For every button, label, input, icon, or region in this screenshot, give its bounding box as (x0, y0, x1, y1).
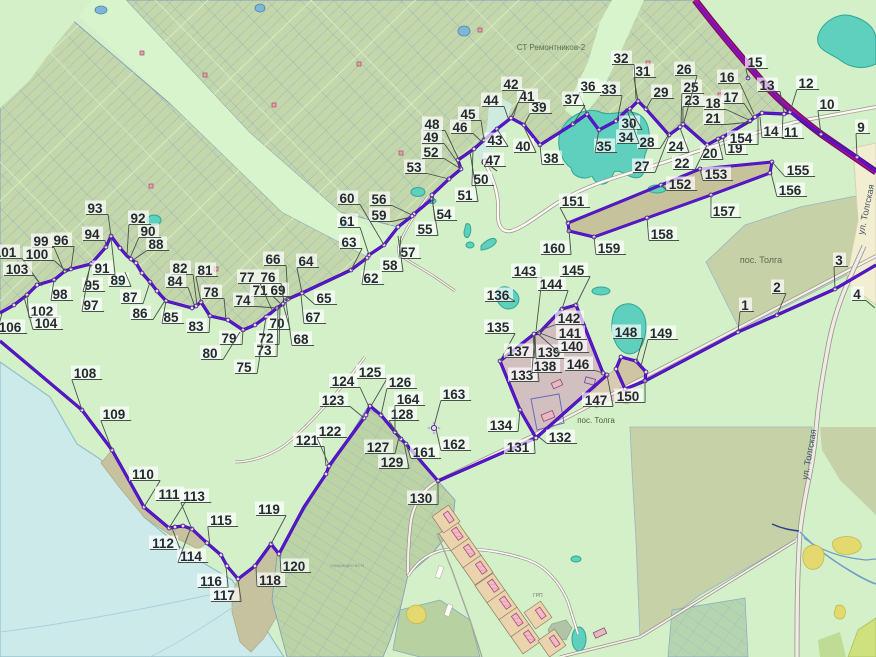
svg-text:101: 101 (0, 245, 17, 260)
svg-text:120: 120 (283, 559, 306, 574)
svg-text:137: 137 (507, 344, 530, 359)
svg-text:34: 34 (618, 130, 634, 145)
svg-text:42: 42 (503, 77, 518, 92)
svg-text:152: 152 (669, 177, 692, 192)
svg-text:161: 161 (413, 445, 436, 460)
svg-text:86: 86 (132, 306, 148, 321)
svg-text:ГРП: ГРП (533, 593, 543, 599)
svg-text:73: 73 (256, 343, 272, 358)
svg-text:4: 4 (853, 287, 861, 302)
svg-text:125: 125 (359, 365, 382, 380)
svg-text:87: 87 (122, 290, 137, 305)
svg-text:149: 149 (650, 326, 673, 341)
svg-text:11: 11 (784, 125, 799, 140)
svg-text:114: 114 (180, 549, 202, 564)
svg-text:83: 83 (188, 319, 204, 334)
svg-text:136: 136 (487, 288, 510, 303)
svg-text:30: 30 (621, 116, 636, 131)
svg-text:9: 9 (857, 120, 865, 135)
svg-text:пос. Толга: пос. Толга (740, 255, 782, 265)
svg-text:43: 43 (487, 133, 503, 148)
svg-text:144: 144 (540, 277, 563, 292)
svg-text:38: 38 (543, 151, 559, 166)
svg-text:133: 133 (511, 368, 534, 383)
svg-text:158: 158 (651, 227, 674, 242)
svg-text:155: 155 (787, 163, 810, 178)
svg-text:65: 65 (316, 291, 332, 306)
svg-text:139: 139 (538, 345, 561, 360)
svg-text:122: 122 (319, 424, 342, 439)
svg-text:80: 80 (202, 346, 217, 361)
svg-text:118: 118 (259, 573, 281, 588)
svg-text:164: 164 (397, 392, 420, 407)
svg-text:145: 145 (562, 263, 585, 278)
svg-text:14: 14 (763, 124, 779, 139)
svg-text:97: 97 (83, 298, 98, 313)
svg-text:68: 68 (293, 332, 309, 347)
svg-text:154: 154 (730, 131, 753, 146)
svg-text:103: 103 (6, 262, 29, 277)
svg-text:25: 25 (683, 80, 699, 95)
svg-text:100: 100 (26, 247, 49, 262)
svg-text:1: 1 (741, 298, 749, 313)
svg-text:113: 113 (183, 489, 205, 504)
svg-text:12: 12 (798, 76, 813, 91)
svg-text:131: 131 (507, 440, 530, 455)
svg-text:116: 116 (200, 574, 222, 589)
svg-text:67: 67 (305, 310, 320, 325)
svg-text:104: 104 (35, 316, 58, 331)
svg-text:130: 130 (410, 491, 433, 506)
svg-text:16: 16 (719, 70, 735, 85)
svg-text:56: 56 (371, 192, 387, 207)
svg-text:77: 77 (239, 270, 254, 285)
svg-text:62: 62 (363, 271, 378, 286)
svg-text:150: 150 (617, 389, 640, 404)
svg-text:44: 44 (483, 93, 499, 108)
svg-text:55: 55 (417, 222, 433, 237)
svg-text:134: 134 (490, 418, 513, 433)
svg-text:15: 15 (747, 55, 763, 70)
svg-text:66: 66 (265, 252, 281, 267)
svg-text:33: 33 (601, 82, 617, 97)
svg-text:98: 98 (52, 287, 68, 302)
svg-text:2: 2 (773, 280, 781, 295)
svg-text:52: 52 (423, 145, 438, 160)
svg-text:46: 46 (452, 120, 468, 135)
svg-text:92: 92 (130, 211, 145, 226)
svg-text:61: 61 (339, 214, 355, 229)
svg-text:124: 124 (332, 374, 355, 389)
svg-text:57: 57 (400, 245, 415, 260)
svg-text:товарищество N: товарищество N (330, 563, 364, 568)
svg-text:89: 89 (110, 273, 125, 288)
svg-text:24: 24 (668, 139, 684, 154)
svg-text:108: 108 (74, 366, 97, 381)
svg-text:115: 115 (210, 513, 232, 528)
svg-text:88: 88 (148, 237, 164, 252)
svg-text:26: 26 (676, 62, 692, 77)
svg-text:135: 135 (487, 320, 510, 335)
svg-text:32: 32 (613, 51, 628, 66)
svg-text:126: 126 (389, 375, 412, 390)
svg-text:20: 20 (702, 146, 717, 161)
svg-text:22: 22 (674, 156, 689, 171)
svg-text:162: 162 (443, 437, 466, 452)
svg-text:17: 17 (723, 90, 738, 105)
svg-text:109: 109 (103, 407, 126, 422)
svg-text:123: 123 (322, 393, 345, 408)
svg-text:127: 127 (367, 440, 390, 455)
svg-text:146: 146 (567, 357, 590, 372)
svg-text:90: 90 (140, 224, 155, 239)
svg-text:91: 91 (94, 261, 110, 276)
svg-text:128: 128 (391, 407, 414, 422)
svg-text:121: 121 (296, 433, 319, 448)
svg-text:157: 157 (713, 204, 736, 219)
svg-text:79: 79 (221, 331, 236, 346)
svg-text:51: 51 (457, 188, 473, 203)
svg-text:37: 37 (564, 92, 579, 107)
svg-text:93: 93 (87, 201, 103, 216)
svg-text:129: 129 (381, 455, 404, 470)
svg-text:163: 163 (443, 387, 466, 402)
svg-text:70: 70 (269, 316, 284, 331)
svg-text:60: 60 (339, 191, 354, 206)
svg-text:117: 117 (213, 588, 235, 603)
svg-text:13: 13 (759, 78, 775, 93)
svg-text:31: 31 (635, 64, 651, 79)
svg-text:41: 41 (519, 89, 535, 104)
svg-text:35: 35 (596, 139, 612, 154)
svg-text:54: 54 (436, 207, 452, 222)
svg-text:пос. Толга: пос. Толга (577, 416, 615, 425)
svg-text:10: 10 (819, 97, 834, 112)
svg-text:111: 111 (158, 487, 180, 502)
svg-text:156: 156 (779, 183, 802, 198)
svg-text:74: 74 (235, 293, 251, 308)
svg-text:64: 64 (298, 254, 314, 269)
svg-text:141: 141 (559, 326, 582, 341)
svg-text:140: 140 (561, 339, 584, 354)
svg-text:59: 59 (371, 208, 386, 223)
svg-text:3: 3 (835, 253, 843, 268)
svg-text:27: 27 (634, 159, 649, 174)
svg-text:28: 28 (639, 135, 655, 150)
svg-text:СТ Ремонтников-2: СТ Ремонтников-2 (517, 43, 586, 52)
svg-text:84: 84 (167, 274, 183, 289)
svg-text:78: 78 (203, 285, 219, 300)
svg-text:23: 23 (684, 93, 700, 108)
svg-text:159: 159 (598, 241, 621, 256)
svg-text:143: 143 (514, 264, 537, 279)
svg-text:49: 49 (423, 130, 438, 145)
svg-text:81: 81 (197, 263, 213, 278)
svg-text:76: 76 (260, 270, 276, 285)
svg-text:63: 63 (341, 235, 357, 250)
svg-text:132: 132 (549, 430, 572, 445)
svg-text:110: 110 (132, 467, 154, 482)
svg-text:147: 147 (585, 393, 608, 408)
svg-text:53: 53 (406, 160, 422, 175)
svg-text:106: 106 (0, 320, 22, 335)
svg-text:40: 40 (515, 139, 530, 154)
svg-text:96: 96 (53, 233, 69, 248)
svg-text:112: 112 (152, 536, 174, 551)
svg-text:18: 18 (705, 96, 721, 111)
svg-text:142: 142 (558, 311, 581, 326)
svg-text:153: 153 (705, 167, 728, 182)
svg-text:29: 29 (653, 85, 668, 100)
svg-text:21: 21 (705, 111, 721, 126)
svg-text:75: 75 (236, 360, 252, 375)
svg-text:85: 85 (163, 310, 179, 325)
svg-text:94: 94 (84, 227, 100, 242)
svg-text:119: 119 (258, 502, 280, 517)
svg-text:47: 47 (485, 153, 500, 168)
svg-text:151: 151 (562, 194, 585, 209)
svg-text:160: 160 (543, 241, 566, 256)
svg-text:148: 148 (615, 325, 638, 340)
svg-text:138: 138 (534, 359, 557, 374)
svg-text:58: 58 (382, 258, 398, 273)
